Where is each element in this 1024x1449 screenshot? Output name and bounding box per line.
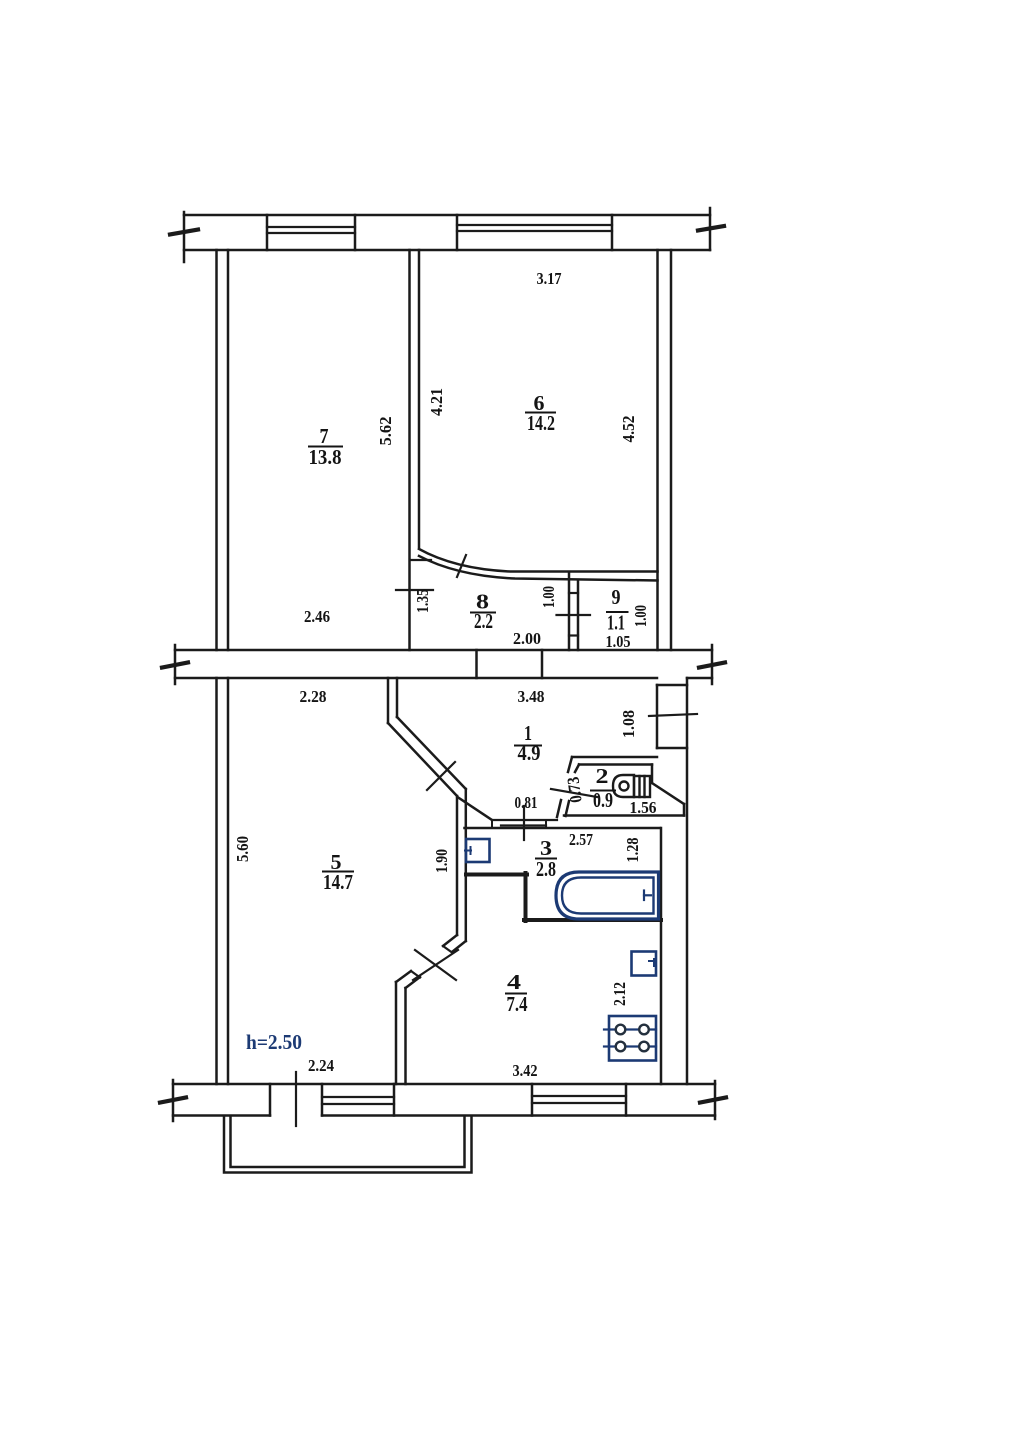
svg-text:0.73: 0.73 xyxy=(563,776,585,804)
svg-text:14.2: 14.2 xyxy=(527,411,555,435)
svg-text:1.00: 1.00 xyxy=(631,605,650,627)
svg-text:1.90: 1.90 xyxy=(432,849,451,873)
svg-text:4.9: 4.9 xyxy=(518,741,541,765)
svg-text:1.28: 1.28 xyxy=(623,838,642,863)
svg-text:13.8: 13.8 xyxy=(309,445,342,469)
svg-text:4.52: 4.52 xyxy=(619,416,638,443)
svg-text:2.8: 2.8 xyxy=(536,857,556,881)
svg-text:h=2.50: h=2.50 xyxy=(246,1030,302,1054)
svg-text:9: 9 xyxy=(612,585,621,609)
svg-text:5.62: 5.62 xyxy=(376,417,395,446)
svg-text:1.05: 1.05 xyxy=(606,632,631,651)
svg-text:1.08: 1.08 xyxy=(619,710,638,738)
svg-text:3.17: 3.17 xyxy=(537,269,562,288)
svg-text:2.57: 2.57 xyxy=(569,830,593,849)
svg-text:0.9: 0.9 xyxy=(593,788,613,812)
svg-text:2.24: 2.24 xyxy=(308,1056,334,1075)
svg-text:3.48: 3.48 xyxy=(518,687,545,706)
svg-text:14.7: 14.7 xyxy=(323,870,353,894)
svg-text:3.42: 3.42 xyxy=(513,1061,538,1080)
svg-text:2: 2 xyxy=(596,764,609,788)
svg-text:2.28: 2.28 xyxy=(300,687,327,706)
svg-text:2.46: 2.46 xyxy=(304,607,330,626)
svg-text:5.60: 5.60 xyxy=(233,836,252,862)
svg-text:1.35: 1.35 xyxy=(413,589,432,613)
svg-text:1.1: 1.1 xyxy=(607,611,625,635)
svg-text:2.2: 2.2 xyxy=(474,609,493,633)
svg-text:2.12: 2.12 xyxy=(610,982,629,1006)
svg-text:7.4: 7.4 xyxy=(507,992,528,1016)
svg-text:0.81: 0.81 xyxy=(515,793,538,812)
svg-text:4: 4 xyxy=(507,970,522,994)
svg-text:1.00: 1.00 xyxy=(539,586,558,608)
svg-text:2.00: 2.00 xyxy=(513,629,541,648)
svg-text:1.56: 1.56 xyxy=(630,798,657,817)
svg-text:4.21: 4.21 xyxy=(427,388,446,416)
